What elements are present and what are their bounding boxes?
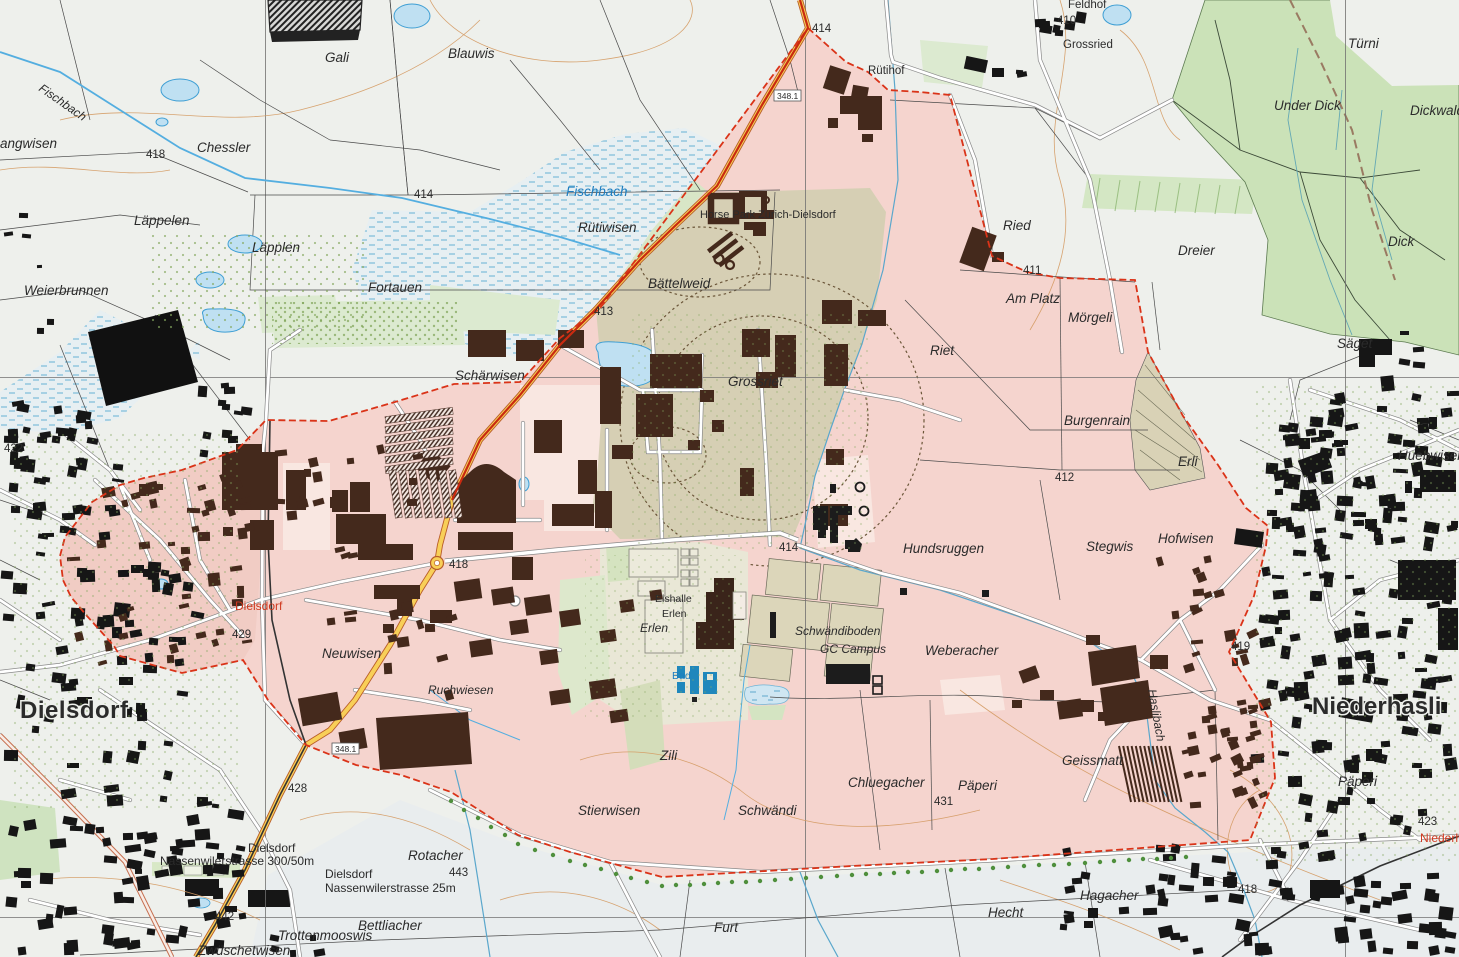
svg-text:Dielsdorf: Dielsdorf [248,841,296,855]
svg-text:422: 422 [4,443,23,455]
svg-text:413: 413 [594,306,613,318]
svg-text:Läppelen: Läppelen [134,213,190,228]
svg-text:412: 412 [1055,472,1074,484]
svg-text:423: 423 [1418,816,1437,828]
svg-text:Hofwisen: Hofwisen [1158,531,1214,546]
svg-text:Niederhasli: Niederhasli [1312,693,1441,720]
svg-text:Mörgeli: Mörgeli [1068,310,1113,325]
svg-text:Schwändi: Schwändi [738,803,798,818]
svg-text:Burgenrain: Burgenrain [1064,413,1130,428]
svg-text:348.1: 348.1 [335,744,357,754]
svg-text:Türni: Türni [1348,36,1380,51]
svg-text:414: 414 [779,542,799,554]
svg-text:Hecht: Hecht [988,905,1025,920]
svg-text:Horse Park Zürich-Dielsdorf: Horse Park Zürich-Dielsdorf [700,209,837,221]
svg-text:428: 428 [288,783,307,795]
svg-text:Rütihof: Rütihof [868,65,905,77]
svg-text:Schärwisen: Schärwisen [455,368,525,383]
svg-text:Päperi: Päperi [1338,774,1378,789]
svg-text:Erlen: Erlen [640,621,668,635]
svg-text:Ried: Ried [1003,218,1031,233]
svg-text:Stierwisen: Stierwisen [578,803,640,818]
svg-text:Zwüschetwisen: Zwüschetwisen [197,943,290,957]
svg-text:Grossried: Grossried [1063,39,1113,51]
svg-text:Fischbach: Fischbach [566,184,628,199]
svg-text:348.1: 348.1 [777,91,799,101]
svg-text:Erli: Erli [1178,454,1198,469]
svg-text:Trottenmooswis: Trottenmooswis [278,928,373,943]
svg-text:Dick: Dick [1388,234,1415,249]
svg-text:Chluegacher: Chluegacher [848,775,925,790]
svg-text:418: 418 [146,149,165,161]
svg-text:414: 414 [414,189,434,201]
svg-text:Schwändiboden: Schwändiboden [795,624,881,638]
svg-text:Hagacher: Hagacher [1080,888,1139,903]
svg-text:Dielsdorf: Dielsdorf [235,599,283,613]
svg-text:Eishalle: Eishalle [655,593,692,605]
svg-text:Erlen: Erlen [662,608,687,620]
svg-text:Am Platz: Am Platz [1005,291,1060,306]
svg-text:414: 414 [812,23,832,35]
svg-text:Weierbrunnen: Weierbrunnen [24,283,109,298]
svg-text:Rotacher: Rotacher [408,848,463,863]
svg-text:Riet: Riet [930,343,955,358]
svg-text:442: 442 [215,911,234,923]
svg-text:Päperi: Päperi [958,778,998,793]
svg-text:Zili: Zili [659,748,678,763]
svg-text:Stegwis: Stegwis [1086,539,1134,554]
svg-text:Feldhof: Feldhof [1068,0,1107,11]
svg-text:Bad: Bad [672,670,691,682]
svg-text:Dreier: Dreier [1178,243,1215,258]
svg-text:Nassenwilerstrasse 300/50m: Nassenwilerstrasse 300/50m [160,854,314,868]
svg-text:443: 443 [449,867,468,879]
svg-text:Säget: Säget [1337,336,1374,351]
svg-text:GC Campus: GC Campus [820,642,886,656]
svg-text:Ruchwiesen: Ruchwiesen [428,683,494,697]
svg-text:Huebwisen: Huebwisen [1398,448,1459,463]
svg-text:Läpplen: Läpplen [252,240,300,255]
svg-text:Bättelweid: Bättelweid [648,276,711,291]
svg-text:angwisen: angwisen [0,136,57,151]
svg-text:Fortauen: Fortauen [368,280,422,295]
svg-text:Niederh: Niederh [1420,831,1459,845]
svg-text:Furt: Furt [714,920,739,935]
svg-text:Blauwis: Blauwis [448,46,495,61]
svg-text:429: 429 [232,629,251,641]
svg-text:Dielsdorf: Dielsdorf [20,697,129,724]
svg-text:418: 418 [449,559,468,571]
svg-text:418: 418 [1238,884,1257,896]
svg-text:Rütiwisen: Rütiwisen [578,220,637,235]
svg-text:Dickwald: Dickwald [1410,103,1459,118]
svg-text:Hundsruggen: Hundsruggen [903,541,984,556]
svg-text:411: 411 [1023,265,1041,277]
svg-text:410: 410 [1057,15,1076,27]
svg-text:Gali: Gali [325,50,350,65]
svg-text:Dielsdorf: Dielsdorf [325,867,373,881]
svg-text:Under Dick: Under Dick [1274,98,1342,113]
svg-text:Weberacher: Weberacher [925,643,999,658]
svg-text:Grossriet: Grossriet [728,374,784,389]
svg-text:Neuwisen: Neuwisen [322,646,381,661]
svg-text:431: 431 [934,796,953,808]
svg-text:419: 419 [1231,641,1250,653]
svg-text:Nassenwilerstrasse 25m: Nassenwilerstrasse 25m [325,881,456,895]
svg-text:Chessler: Chessler [197,140,251,155]
svg-text:Geissmatt: Geissmatt [1062,753,1124,768]
